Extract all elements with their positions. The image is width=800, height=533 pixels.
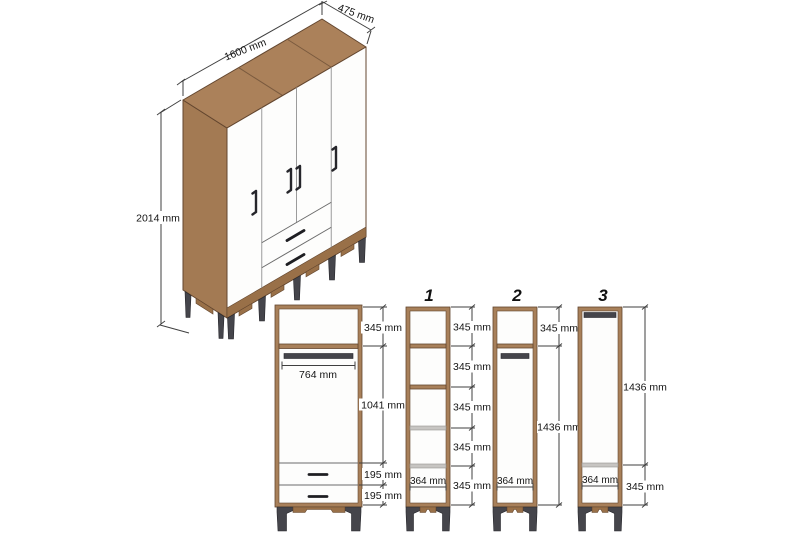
shelf bbox=[582, 463, 618, 467]
metal-leg bbox=[277, 507, 293, 531]
drawer-height-label: 195 mm bbox=[364, 490, 402, 502]
unit-1-diagram: 1 364 mm 345 mm 345 mm 345 mm 345 mm 345… bbox=[406, 286, 493, 531]
unit-1-dimensions: 345 mm 345 mm 345 mm 345 mm 345 mm bbox=[451, 305, 493, 508]
unit-width-label: 364 mm bbox=[410, 476, 446, 487]
hanging-section-label: 1041 mm bbox=[361, 400, 405, 412]
metal-leg bbox=[578, 507, 592, 531]
wardrobe-dimension-diagram: 1600 mm 475 mm 2014 mm 764 mm bbox=[0, 0, 800, 533]
side-panel bbox=[183, 100, 227, 318]
hanging-rail bbox=[284, 354, 353, 359]
unit-number: 1 bbox=[424, 286, 433, 305]
drawer-height-label: 195 mm bbox=[364, 469, 402, 481]
hanging-rail bbox=[584, 313, 616, 318]
metal-leg bbox=[436, 507, 450, 531]
cabinet-interior bbox=[497, 311, 533, 503]
shelf bbox=[497, 344, 533, 348]
front-view-dimensions: 345 mm 1041 mm 195 mm 195 mm bbox=[359, 305, 407, 508]
unit-2-diagram: 2 364 mm 345 mm 1436 mm bbox=[493, 286, 581, 531]
metal-leg bbox=[608, 507, 622, 531]
section-label: 345 mm bbox=[626, 481, 664, 493]
metal-leg bbox=[493, 507, 507, 531]
cabinet-interior bbox=[410, 311, 446, 503]
unit-number: 3 bbox=[598, 286, 608, 305]
section-label: 345 mm bbox=[453, 322, 491, 334]
section-label: 1436 mm bbox=[623, 382, 667, 394]
apron bbox=[420, 507, 436, 513]
unit-width-label: 364 mm bbox=[497, 476, 533, 487]
hanging-rail bbox=[501, 354, 529, 359]
section-label: 1436 mm bbox=[537, 422, 581, 434]
shelf bbox=[410, 426, 446, 430]
metal-leg bbox=[523, 507, 537, 531]
section-label: 345 mm bbox=[453, 361, 491, 373]
section-label: 345 mm bbox=[453, 402, 491, 414]
unit-number: 2 bbox=[511, 286, 522, 305]
front-view-combined: 764 mm 345 mm 1041 mm 195 mm 195 mm bbox=[275, 305, 407, 532]
section-label: 345 mm bbox=[453, 480, 491, 492]
rod-width-label: 764 mm bbox=[299, 369, 337, 381]
shelf bbox=[410, 344, 446, 348]
unit-3-diagram: 3 364 mm 1436 mm 345 mm bbox=[578, 286, 667, 531]
apron bbox=[592, 507, 608, 513]
section-label: 345 mm bbox=[540, 323, 578, 335]
metal-leg bbox=[345, 507, 361, 531]
shelf bbox=[279, 344, 358, 349]
shelf bbox=[410, 464, 446, 468]
height-dimension: 2014 mm bbox=[134, 100, 189, 333]
section-label: 345 mm bbox=[453, 442, 491, 454]
height-dimension-label: 2014 mm bbox=[136, 213, 180, 225]
isometric-view: 1600 mm 475 mm 2014 mm bbox=[134, 1, 376, 339]
shelf bbox=[410, 385, 446, 389]
apron bbox=[507, 507, 523, 513]
unit-width-label: 364 mm bbox=[582, 475, 618, 486]
top-section-label: 345 mm bbox=[364, 322, 402, 334]
apron bbox=[293, 507, 345, 513]
depth-dimension-label: 475 mm bbox=[336, 2, 376, 26]
unit-2-dimensions: 345 mm 1436 mm bbox=[537, 305, 581, 508]
unit-3-dimensions: 1436 mm 345 mm bbox=[623, 305, 667, 508]
metal-leg bbox=[406, 507, 420, 531]
